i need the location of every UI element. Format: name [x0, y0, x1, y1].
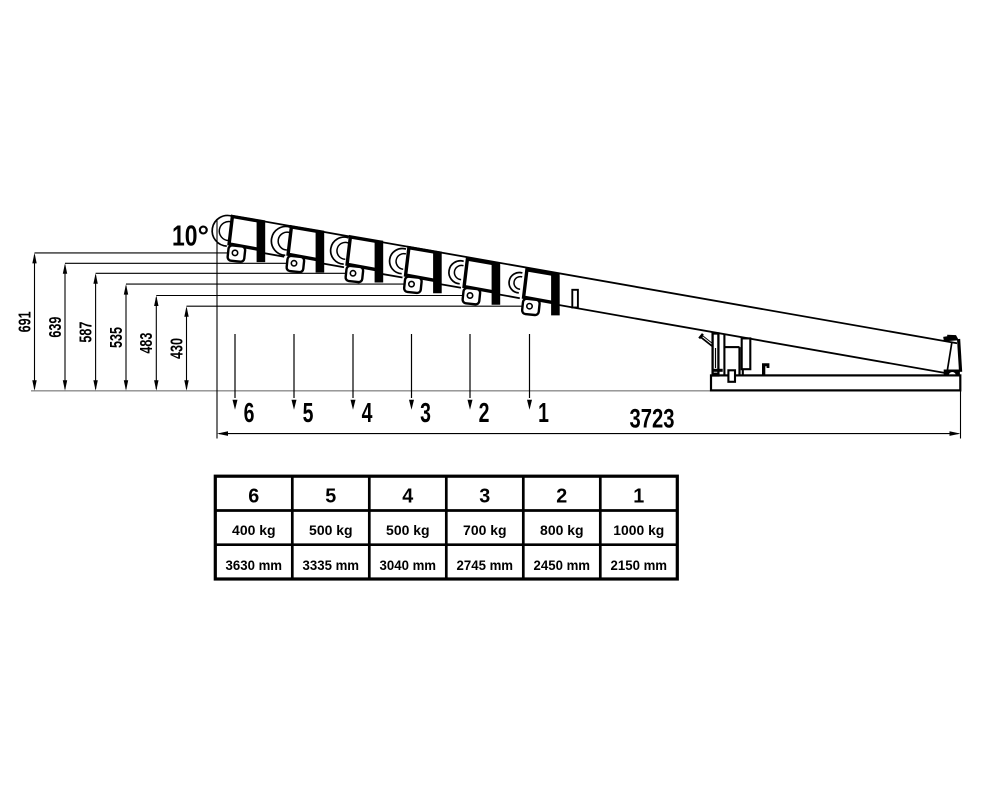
svg-text:3630 mm: 3630 mm: [226, 558, 283, 574]
svg-text:400 kg: 400 kg: [232, 523, 276, 539]
svg-text:4: 4: [402, 485, 414, 508]
svg-text:1: 1: [538, 397, 549, 428]
svg-text:587: 587: [75, 322, 95, 343]
svg-text:430: 430: [166, 338, 186, 359]
svg-text:700 kg: 700 kg: [463, 523, 507, 539]
svg-text:10: 10: [172, 221, 198, 253]
svg-text:2450 mm: 2450 mm: [534, 558, 591, 574]
svg-text:2: 2: [479, 397, 490, 428]
svg-text:4: 4: [362, 397, 373, 428]
svg-text:6: 6: [244, 397, 255, 428]
svg-text:800 kg: 800 kg: [540, 523, 584, 539]
svg-text:3: 3: [420, 397, 431, 428]
svg-text:°: °: [198, 221, 210, 253]
svg-text:1: 1: [633, 485, 644, 508]
svg-text:5: 5: [303, 397, 314, 428]
svg-text:3335 mm: 3335 mm: [303, 558, 360, 574]
svg-text:3: 3: [479, 485, 490, 508]
svg-text:639: 639: [45, 316, 65, 337]
svg-text:6: 6: [248, 485, 259, 508]
svg-text:3040 mm: 3040 mm: [380, 558, 437, 574]
svg-text:691: 691: [14, 311, 34, 332]
svg-text:1000 kg: 1000 kg: [613, 523, 664, 539]
svg-text:2745 mm: 2745 mm: [457, 558, 514, 574]
svg-text:3723: 3723: [630, 404, 675, 434]
svg-text:500 kg: 500 kg: [309, 523, 353, 539]
svg-text:2150 mm: 2150 mm: [611, 558, 668, 574]
svg-text:500 kg: 500 kg: [386, 523, 430, 539]
svg-text:2: 2: [556, 485, 567, 508]
svg-text:483: 483: [136, 332, 156, 353]
svg-text:5: 5: [325, 485, 336, 508]
svg-text:535: 535: [106, 327, 126, 348]
